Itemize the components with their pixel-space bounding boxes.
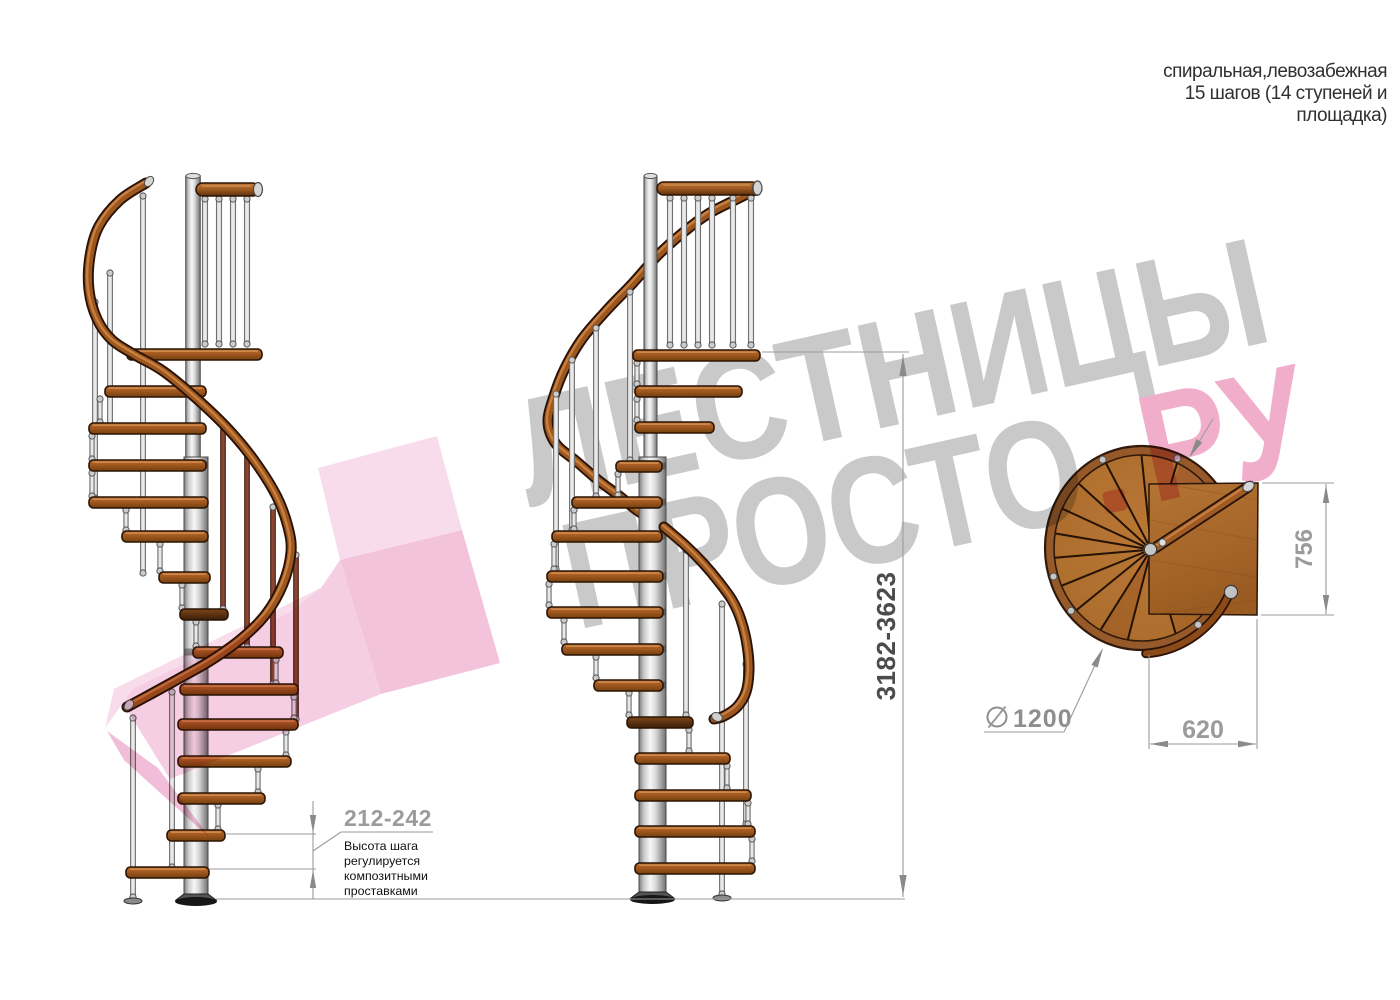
svg-text:15 шагов (14 ступеней и: 15 шагов (14 ступеней и <box>1185 83 1387 104</box>
svg-text:Высота шага: Высота шага <box>344 839 418 853</box>
svg-text:спиральная,левозабежная: спиральная,левозабежная <box>1163 61 1387 82</box>
svg-text:1200: 1200 <box>1013 705 1073 733</box>
svg-text:3182-3623: 3182-3623 <box>871 572 901 701</box>
svg-text:композитными: композитными <box>344 869 428 883</box>
svg-text:620: 620 <box>1182 716 1224 744</box>
svg-text:проставками: проставками <box>344 884 418 898</box>
svg-text:площадка): площадка) <box>1296 105 1387 126</box>
svg-text:212-242: 212-242 <box>344 805 432 831</box>
svg-text:регулируется: регулируется <box>344 854 420 868</box>
svg-text:756: 756 <box>1291 529 1318 569</box>
